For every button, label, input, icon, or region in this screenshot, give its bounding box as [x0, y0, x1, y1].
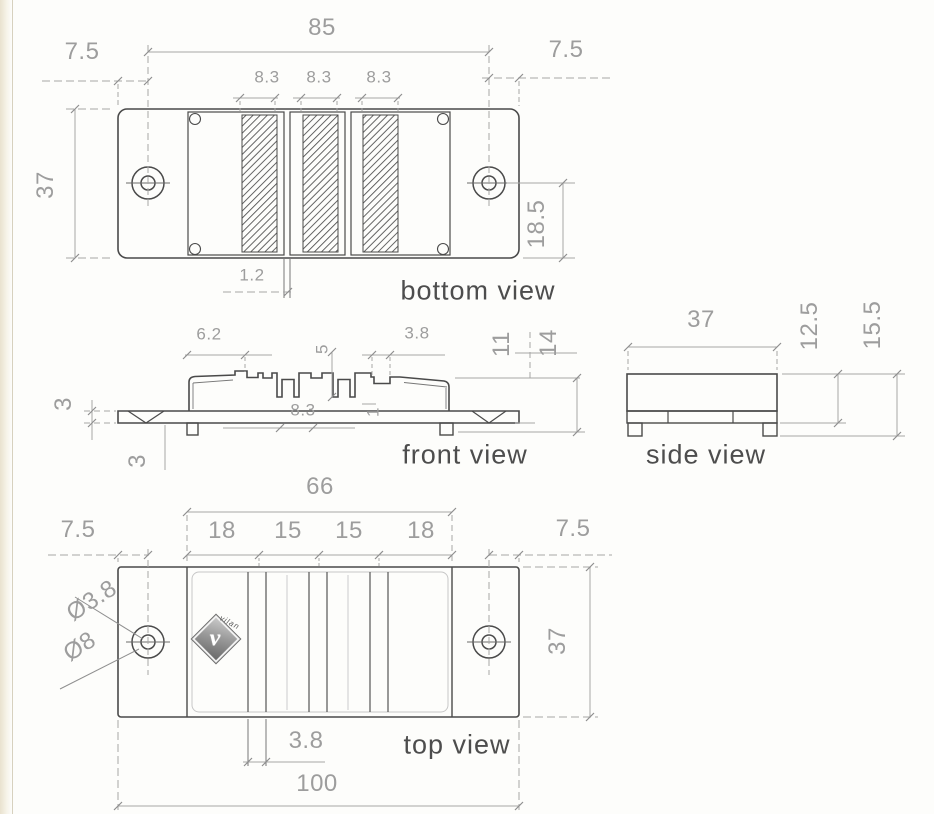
dim-top-offset-right: 7.5: [556, 517, 591, 541]
front-view-title: front view: [402, 442, 528, 469]
dim-front-notch-right: 3.8: [404, 325, 429, 342]
bottom-view-title: bottom view: [400, 278, 555, 305]
dim-front-slot-pitch: 8.3: [290, 402, 315, 419]
dim-side-height-125: 12.5: [798, 302, 822, 351]
dim-top-offset-left: 7.5: [61, 518, 96, 542]
logo-v-glyph: v: [210, 626, 221, 653]
dim-front-wall-1: 1: [365, 407, 382, 417]
dim-strip-1: 8.3: [254, 69, 279, 86]
dim-top-section-3: 15: [335, 519, 363, 543]
dim-bottom-gap: 1.2: [239, 267, 264, 284]
dim-side-width-37: 37: [687, 308, 715, 332]
dim-top-section-4: 18: [407, 519, 435, 543]
dim-strip-3: 8.3: [366, 69, 391, 86]
dim-front-height-11: 11: [490, 331, 514, 357]
top-view-title: top view: [403, 732, 510, 759]
dim-bottom-height-37: 37: [34, 171, 58, 199]
dim-strip-2: 8.3: [306, 69, 331, 86]
dim-bottom-offset-right: 7.5: [549, 38, 584, 62]
dim-side-height-155: 15.5: [861, 301, 885, 350]
dim-front-height-14: 14: [537, 329, 561, 357]
dim-top-section-2: 15: [274, 519, 302, 543]
dim-top-body-width-66: 66: [306, 475, 334, 499]
side-view-title: side view: [646, 442, 766, 469]
dim-front-slot-depth: 5: [314, 344, 331, 354]
dim-bottom-offset-left: 7.5: [65, 40, 100, 64]
drawing-sheet: 85 7.5 7.5 8.3 8.3 8.3 37 18.5 1.2 botto…: [0, 0, 934, 814]
dim-top-groove-38: 3.8: [289, 729, 324, 753]
dim-top-section-1: 18: [208, 519, 236, 543]
dim-front-flange-thickness: 3: [52, 397, 76, 411]
dim-front-foot-height: 3: [126, 454, 150, 468]
dim-top-height-37: 37: [546, 627, 570, 655]
dim-bottom-hole-offset: 18.5: [525, 200, 549, 249]
dim-front-notch-left: 6.2: [196, 326, 221, 343]
top-view-dim-ticks: [114, 508, 594, 810]
dim-bottom-width-85: 85: [308, 16, 336, 40]
drawing-linework: [0, 0, 934, 814]
dim-top-total-100: 100: [296, 772, 338, 796]
